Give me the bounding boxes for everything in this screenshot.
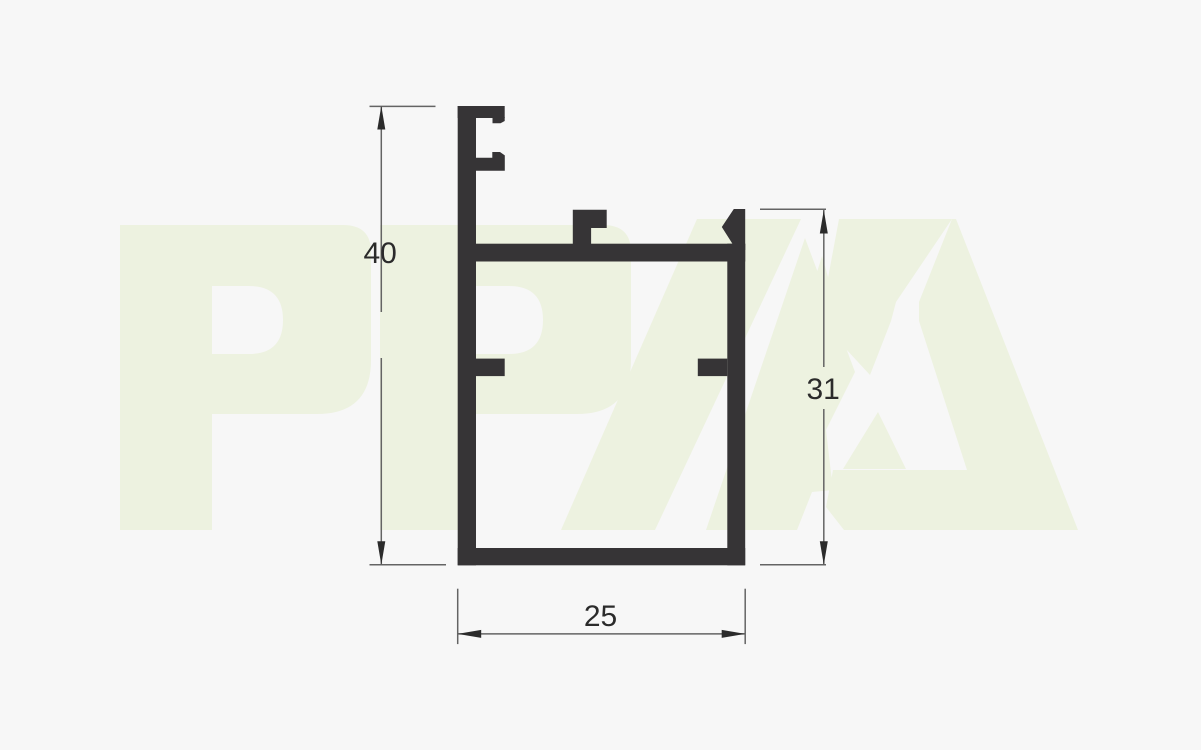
svg-text:31: 31 bbox=[807, 373, 840, 406]
svg-text:40: 40 bbox=[364, 237, 397, 270]
svg-text:25: 25 bbox=[584, 600, 617, 633]
